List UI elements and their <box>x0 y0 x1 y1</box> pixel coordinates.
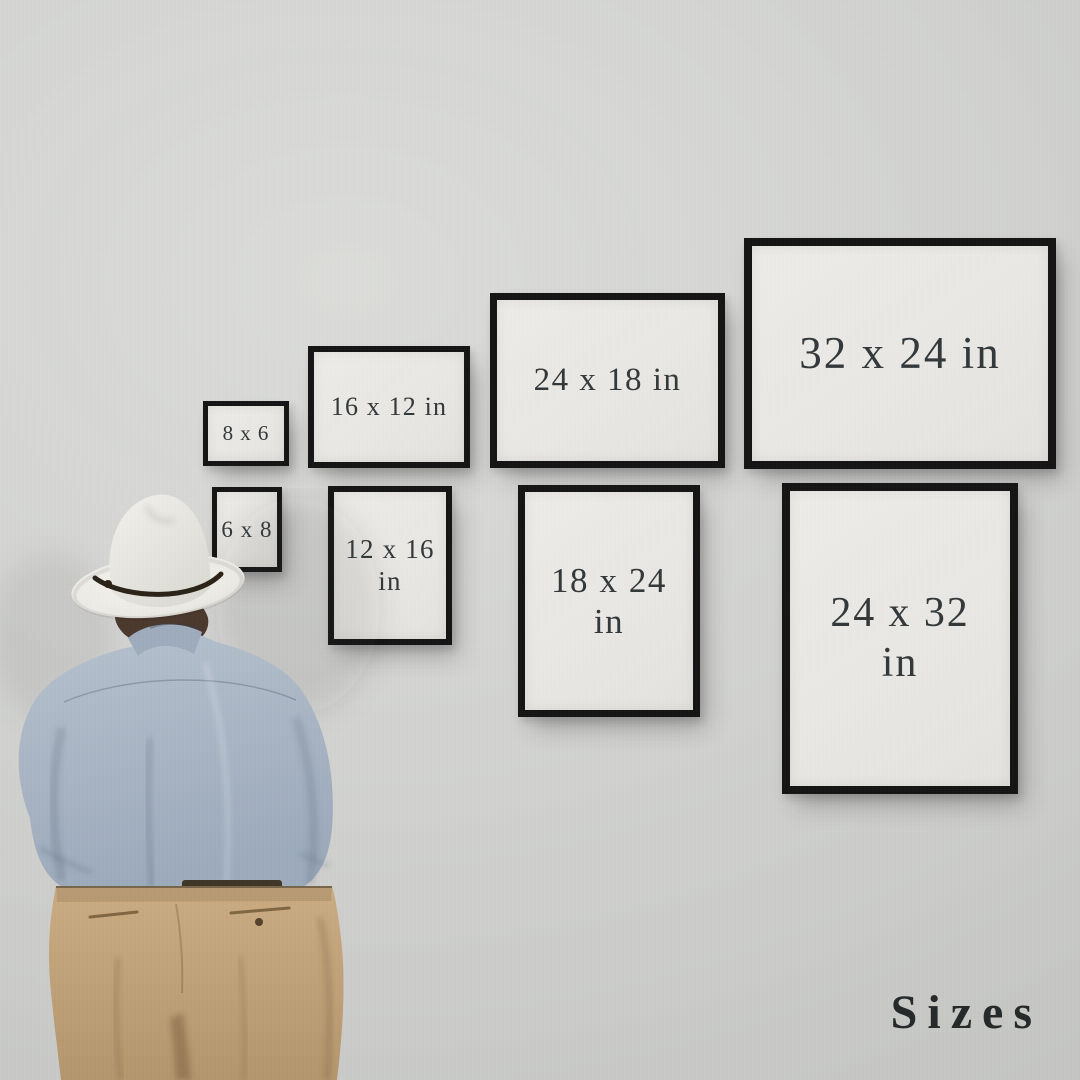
size-label: 24 x 18 in <box>534 361 682 400</box>
waistband <box>56 886 332 902</box>
size-label-line1: 24 x 32 <box>830 589 969 639</box>
frame-paper: 32 x 24 in <box>752 246 1048 461</box>
size-label: 16 x 12 in <box>331 392 447 423</box>
size-label: 8 x 6 <box>223 421 270 446</box>
size-label-line1: 32 x 24 in <box>799 327 1001 380</box>
size-label-line1: 16 x 12 in <box>331 392 447 423</box>
frame-paper: 18 x 24 in <box>525 492 693 710</box>
frame-paper: 8 x 6 <box>208 406 284 461</box>
size-label-line2: in <box>594 601 624 642</box>
watermark-text: Sizes <box>891 985 1042 1040</box>
frame-paper: 16 x 12 in <box>314 352 464 462</box>
frame-24x18: 24 x 18 in <box>490 293 725 468</box>
frame-16x12: 16 x 12 in <box>308 346 470 468</box>
size-label: 24 x 32 in <box>830 589 969 688</box>
pocket-button <box>255 918 263 926</box>
person-figure <box>0 488 420 1080</box>
frame-paper: 24 x 18 in <box>497 300 718 461</box>
hat-band-knot <box>104 580 112 588</box>
size-label: 32 x 24 in <box>799 327 1001 380</box>
size-label-line1: 24 x 18 in <box>534 361 682 400</box>
frame-24x32: 24 x 32 in <box>782 483 1018 794</box>
frame-paper: 24 x 32 in <box>790 491 1010 786</box>
size-label-line1: 8 x 6 <box>223 421 270 446</box>
frame-32x24: 32 x 24 in <box>744 238 1056 469</box>
wall-background: 8 x 6 16 x 12 in 24 x 18 in 32 x 24 in <box>0 0 1080 1080</box>
frame-8x6: 8 x 6 <box>203 401 289 466</box>
size-label-line1: 18 x 24 <box>551 560 667 601</box>
trousers <box>49 886 344 1080</box>
person-svg <box>0 488 420 1080</box>
size-label-line2: in <box>882 639 918 689</box>
size-label: 18 x 24 in <box>551 560 667 643</box>
frame-18x24: 18 x 24 in <box>518 485 700 717</box>
